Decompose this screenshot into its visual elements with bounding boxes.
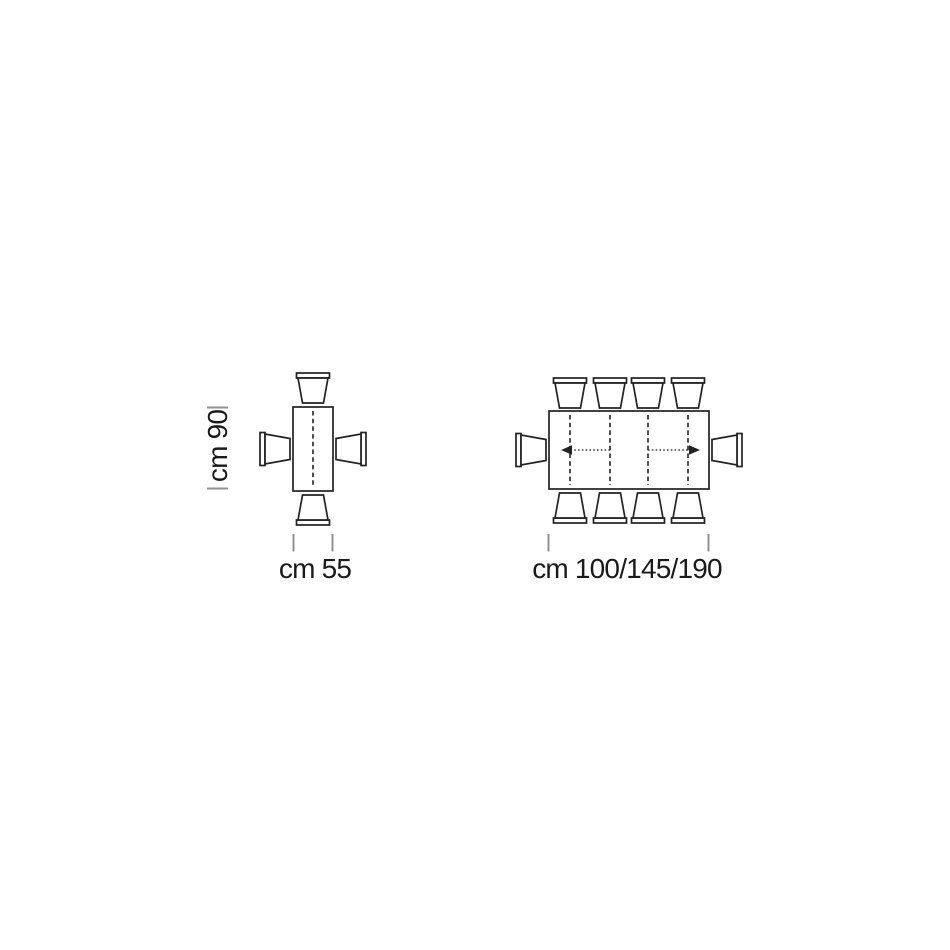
chair-right <box>336 433 366 466</box>
chair-top-3 <box>632 378 665 408</box>
dimension-drawing-canvas: cm 90 cm 55 cm 100/145/190 <box>0 0 950 950</box>
chair-bottom <box>297 495 330 525</box>
chair-bottom-1 <box>554 493 587 523</box>
large-table-top <box>549 411 709 489</box>
chair-bottom-4 <box>672 493 705 523</box>
chair-top-4 <box>672 378 705 408</box>
small-table-width-label: cm 55 <box>279 555 351 583</box>
chair-right-end <box>712 434 742 467</box>
large-table-width-label: cm 100/145/190 <box>532 555 722 583</box>
chair-left-end <box>516 434 546 467</box>
large-table-diagram <box>516 378 742 552</box>
small-table-depth-label: cm 90 <box>204 410 232 482</box>
chair-top-1 <box>554 378 587 408</box>
chair-top-2 <box>594 378 627 408</box>
tables-top-view-drawing <box>0 0 950 950</box>
chair-bottom-3 <box>632 493 665 523</box>
chair-bottom-2 <box>594 493 627 523</box>
chair-top <box>297 373 330 403</box>
chair-left <box>260 433 290 466</box>
